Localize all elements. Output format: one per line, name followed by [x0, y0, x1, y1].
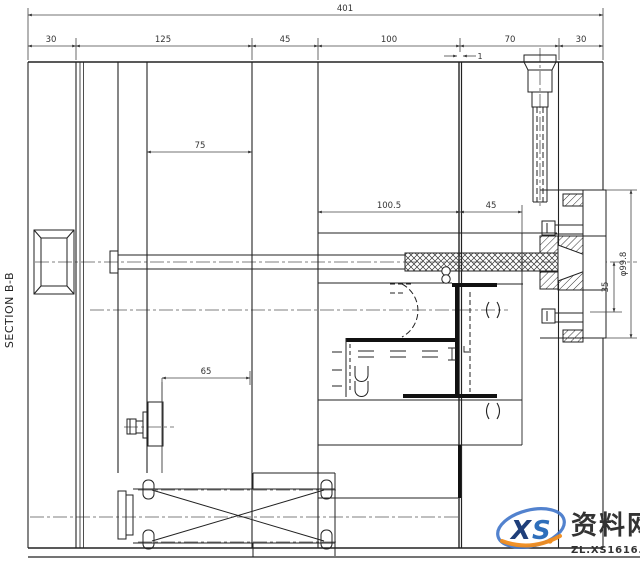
dimension-layer — [28, 8, 637, 444]
section-label: SECTION B-B — [3, 272, 16, 348]
dim-plate-1: 30 — [46, 35, 57, 45]
engineering-drawing: 401 30 125 45 100 70 30 1 75 100.5 45 65… — [0, 0, 640, 562]
centerlines — [30, 48, 637, 542]
dim-plate-3: 45 — [280, 35, 291, 45]
dim-plate-6: 30 — [576, 35, 587, 45]
stop-screw — [127, 402, 163, 446]
dim-plate-5: 70 — [505, 35, 516, 45]
drawing-page: 401 30 125 45 100 70 30 1 75 100.5 45 65… — [0, 0, 640, 562]
watermark-site-url: ZL.XS1616.COM — [571, 545, 640, 556]
dim-overall: 401 — [337, 4, 353, 14]
thread-cavity — [332, 338, 456, 397]
ejector-shaft — [110, 251, 558, 283]
dim-ring-offset: 35 — [601, 282, 611, 293]
ring-bolt-bottom — [542, 309, 583, 323]
dim-plate-4: 100 — [381, 35, 397, 45]
watermark-site-name: 资料网 — [571, 511, 640, 541]
dim-plate-2: 125 — [155, 35, 171, 45]
dim-ring-diameter: φ99.8 — [619, 252, 629, 277]
dim-ejector-span: 75 — [195, 141, 206, 151]
core-insert-detail — [332, 283, 523, 498]
support-cylinder — [118, 473, 335, 557]
dim-gap: 1 — [477, 52, 482, 61]
dim-insert-length: 45 — [486, 201, 497, 211]
xs-logo-text: XS — [509, 516, 551, 546]
xs-logo-icon: XS — [494, 502, 569, 553]
dim-core-length: 100.5 — [377, 201, 401, 211]
dim-stop-offset: 65 — [201, 367, 212, 377]
